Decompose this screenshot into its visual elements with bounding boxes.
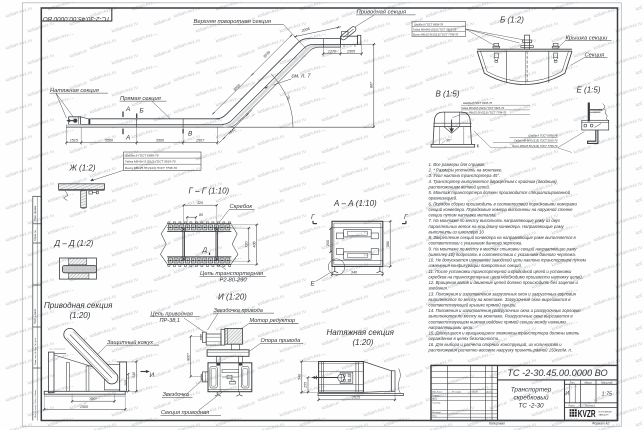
svg-text:Защитный кожух: Защитный кожух	[107, 339, 153, 346]
svg-text:(швеллер 10) подрезать в соо: (швеллер 10) подрезать в соответствии с …	[429, 252, 577, 257]
svg-text:расположением ветвей цепей.: расположением ветвей цепей.	[428, 184, 491, 189]
svg-text:мв. плотность: мв. плотность	[50, 348, 67, 350]
svg-text:Г – Г (1:10): Г – Г (1:10)	[189, 187, 230, 196]
svg-text:90°: 90°	[446, 139, 452, 143]
svg-text:548: 548	[298, 374, 302, 380]
svg-text:Шайба 8 ГОСТ 6958-78: Шайба 8 ГОСТ 6958-78	[528, 133, 558, 137]
svg-text:3500: 3500	[105, 138, 114, 142]
svg-text:10. Не допускается изменение з: 10. Не допускается изменение заводской ц…	[429, 258, 586, 263]
svg-text:4. Транспортер выполняется д: 4. Транспортер выполняется двухцепным с …	[429, 179, 558, 184]
svg-text:расположения расчетно-весовую: расположения расчетно-весовую нагрузку п…	[428, 347, 572, 352]
svg-text:организацией.: организацией.	[429, 196, 458, 201]
svg-text:1500: 1500	[80, 405, 89, 409]
svg-text:Шайба 8 ГОСТ 6958-78: Шайба 8 ГОСТ 6958-78	[125, 154, 159, 158]
svg-text:изменения конфигурации поворот: изменения конфигурации поворотных секций…	[429, 263, 522, 268]
svg-text:Н.контр.: Н.контр.	[432, 412, 442, 414]
svg-text:Р2-80-290: Р2-80-290	[220, 277, 248, 283]
svg-text:Гайка М8-6Н.5 (S10) ГОСТ 5915: Гайка М8-6Н.5 (S10) ГОСТ 5915-70	[125, 160, 176, 164]
svg-text:ограждения в целях безопасност: ограждения в целях безопасности.	[429, 336, 500, 341]
svg-text:Г: Г	[311, 214, 315, 221]
svg-text:Г: Г	[404, 214, 408, 221]
svg-text:см. п. 7: см. п. 7	[292, 74, 312, 80]
svg-text:Копировал: Копировал	[489, 421, 505, 425]
svg-text:720: 720	[245, 240, 249, 247]
svg-text:направляющими цепи.: направляющими цепи.	[429, 325, 474, 330]
svg-text:8. Закрепление секций конвейе: 8. Закрепление секций конвейера на напра…	[429, 235, 577, 240]
svg-text:16. Для выбора и расчета опор: 16. Для выбора и расчета опорных констру…	[429, 342, 563, 347]
svg-text:KVZR: KVZR	[578, 409, 596, 420]
svg-text:3. Угол наклона транспортера: 3. Угол наклона транспортера 45°.	[429, 173, 501, 178]
svg-text:В: В	[188, 131, 193, 138]
svg-text:1270: 1270	[328, 49, 337, 53]
svg-text:Цепь транспортерная: Цепь транспортерная	[200, 271, 263, 277]
svg-text:1. Все размеры для справок.: 1. Все размеры для справок.	[429, 162, 486, 167]
svg-text:867: 867	[370, 81, 374, 88]
svg-text:Инв. № подл. Подп. и дата: Инв. № подл. Подп. и дата	[34, 389, 37, 418]
svg-text:Е: Е	[311, 281, 316, 288]
svg-text:45: 45	[476, 144, 480, 148]
svg-text:Т.контр.: Т.контр.	[432, 402, 441, 404]
svg-text:выполняются по месту на монтаж: выполняются по месту на монтаже. Разгруз…	[429, 314, 574, 319]
svg-text:6. Порядок сборки производить: 6. Порядок сборки производить в соответс…	[429, 201, 578, 206]
svg-text:Д – Д (1:2): Д – Д (1:2)	[54, 239, 94, 248]
svg-text:Б: Б	[140, 108, 144, 115]
svg-text:Гайка М8-6Н5 (S10) ГОСТ 5915-: Гайка М8-6Н5 (S10) ГОСТ 5915-70	[461, 106, 505, 110]
svg-text:Взам. инв. № Инв. № дубл.: Взам. инв. № Инв. № дубл.	[34, 337, 37, 365]
svg-text:780*: 780*	[89, 397, 97, 401]
svg-text:И: И	[150, 372, 155, 379]
svg-text:соответствующей крышке прямой: соответствующей крышке прямой секции.	[429, 303, 517, 308]
svg-text:380: 380	[386, 240, 390, 247]
svg-text:Болт М8х25.58 (S13) ГОСТ 7798: Болт М8х25.58 (S13) ГОСТ 7798-70	[125, 166, 177, 170]
svg-text:Разраб.: Разраб.	[432, 395, 440, 397]
svg-text:Подп.: Подп.	[473, 391, 479, 394]
svg-text:скребковый: скребковый	[513, 393, 549, 401]
svg-text:15. Движущиеся и вращающиеся: 15. Движущиеся и вращающиеся элементы тр…	[429, 331, 580, 336]
svg-text:секции путем наплавки металла.: секции путем наплавки металла.	[429, 213, 497, 218]
svg-text:3500: 3500	[156, 138, 165, 142]
svg-text:9. На монтаже по месту в мест: 9. На монтаже по месту в местах стыковки…	[429, 246, 578, 251]
svg-text:Масса: Масса	[584, 381, 592, 384]
svg-text:200: 200	[326, 239, 330, 247]
svg-text:Утв.: Утв.	[432, 416, 437, 418]
svg-text:Ж (1:2): Ж (1:2)	[69, 164, 96, 173]
svg-text:Лист: Лист	[567, 405, 574, 408]
svg-text:ТС-2-30.45.00.0000 ВО: ТС-2-30.45.00.0000 ВО	[43, 15, 110, 22]
svg-text:Дата: Дата	[486, 392, 494, 394]
svg-text:14. Положения и изготовления: 14. Положения и изготовления разгрузочны…	[429, 308, 582, 313]
svg-text:2507: 2507	[195, 138, 205, 142]
svg-text:265: 265	[124, 380, 128, 387]
svg-text:12. Вращение валов и движение: 12. Вращение валов и движение цепей долж…	[429, 280, 579, 285]
svg-text:Д: Д	[202, 247, 208, 254]
svg-text:И: И	[565, 391, 569, 397]
svg-text:Приводная секция: Приводная секция	[44, 301, 113, 310]
svg-text:Изм.Лист: Изм.Лист	[432, 392, 442, 394]
svg-text:11. После установки транспорт: 11. После установки транспортерной и при…	[429, 269, 572, 274]
svg-text:1515: 1515	[352, 396, 361, 400]
svg-text:Е (1:5): Е (1:5)	[577, 86, 601, 95]
svg-text:1515: 1515	[70, 138, 79, 142]
svg-text:Б (1:2): Б (1:2)	[500, 16, 524, 25]
svg-text:Лит.: Лит.	[568, 381, 575, 384]
svg-text:340: 340	[351, 270, 358, 274]
svg-text:(1:20): (1:20)	[353, 338, 374, 347]
svg-text:№ докум.: № докум.	[452, 391, 462, 394]
svg-text:400: 400	[252, 240, 256, 247]
svg-text:Шайба 8 ГОСТ 6958-78: Шайба 8 ГОСТ 6958-78	[414, 22, 444, 26]
svg-text:Транспортер: Транспортер	[511, 386, 552, 393]
svg-text:Гайка М8-6Н5 (S15) ГОСТ 5915-: Гайка М8-6Н5 (S15) ГОСТ 5915-70	[514, 139, 558, 143]
svg-text:Цепь приводная: Цепь приводная	[151, 311, 193, 317]
svg-text:2. * Размеры уточнить на монт: 2. * Размеры уточнить на монтаже.	[428, 168, 503, 173]
svg-text:1505: 1505	[347, 49, 356, 53]
svg-text:Листов 1: Листов 1	[584, 405, 596, 408]
svg-text:выполняются по месту на монтаж: выполняются по месту на монтаже. Загрузо…	[429, 297, 572, 302]
svg-text:ЗАВОД РУ: ЗАВОД РУ	[599, 414, 610, 417]
svg-text:320: 320	[197, 201, 204, 205]
svg-text:Гайка М8-6Н5 (S10) ГОСТ 5915-: Гайка М8-6Н5 (S10) ГОСТ 5915-70	[413, 27, 457, 31]
svg-text:соответствии с указанием данно: соответствии с указанием данного чертежа…	[429, 241, 523, 246]
svg-text:Перв. примен.: Перв. примен.	[34, 205, 37, 221]
svg-text:скребков на транспортерные цеп: скребков на транспортерные цепи необходи…	[429, 274, 583, 279]
svg-text:548: 548	[132, 372, 136, 378]
svg-text:5. Монтаж транспортера должен: 5. Монтаж транспортера должен производит…	[429, 190, 571, 195]
svg-text:соответствующем нижнем поддоне: соответствующем нижнем поддоне прямой се…	[429, 319, 567, 324]
svg-text:Формат А2: Формат А2	[592, 421, 610, 425]
svg-text:КОТЕЛЬНЫЙ: КОТЕЛЬНЫЙ	[599, 411, 613, 414]
svg-text:7. На монтаже по месту выполн: 7. На монтаже по месту выполнить направл…	[429, 218, 561, 223]
svg-text:А: А	[125, 135, 130, 142]
svg-text:заедания.: заедания.	[428, 286, 448, 291]
svg-text:Болт М8х25.58 (S13) ГОСТ 7798: Болт М8х25.58 (S13) ГОСТ 7798-70	[512, 144, 558, 148]
svg-text:А: А	[125, 106, 130, 113]
svg-text:Шайба 8 ГОСТ 6958-78: Шайба 8 ГОСТ 6958-78	[463, 101, 493, 105]
svg-text:А – А (1:10): А – А (1:10)	[333, 199, 377, 208]
svg-text:выполнить из швеллера 10: выполнить из швеллера 10	[429, 229, 485, 234]
svg-text:И (1:20): И (1:20)	[218, 293, 247, 302]
svg-text:Болт М8х25.58 (S13) ГОСТ 7798: Болт М8х25.58 (S13) ГОСТ 7798-70	[413, 32, 459, 36]
svg-text:1:75: 1:75	[602, 391, 613, 397]
svg-text:Натяжная секция: Натяжная секция	[327, 328, 395, 337]
svg-text:параллельных веток на всю длин: параллельных веток на всю длину конвейер…	[429, 224, 565, 229]
svg-text:ПР-38,1: ПР-38,1	[160, 318, 181, 324]
svg-text:(1:20): (1:20)	[70, 311, 91, 320]
svg-text:Справ. №: Справ. №	[34, 230, 37, 241]
svg-text:ТС -2-30.45.00.0000 ВО: ТС -2-30.45.00.0000 ВО	[507, 368, 607, 378]
svg-text:Пров.: Пров.	[432, 399, 438, 401]
svg-text:800*: 800*	[186, 353, 190, 361]
svg-text:Масштаб: Масштаб	[601, 381, 613, 384]
svg-text:секций конвейера. Порядковые н: секций конвейера. Порядковые номера выпо…	[429, 207, 574, 212]
svg-text:В (1:5): В (1:5)	[436, 90, 460, 99]
svg-text:Подп. и дата: Подп. и дата	[34, 308, 37, 324]
svg-text:13. Положения и изготовления з: 13. Положения и изготовления загрузочных…	[429, 291, 577, 296]
svg-text:255: 255	[304, 382, 308, 389]
svg-text:ТС -2-30: ТС -2-30	[518, 402, 544, 409]
